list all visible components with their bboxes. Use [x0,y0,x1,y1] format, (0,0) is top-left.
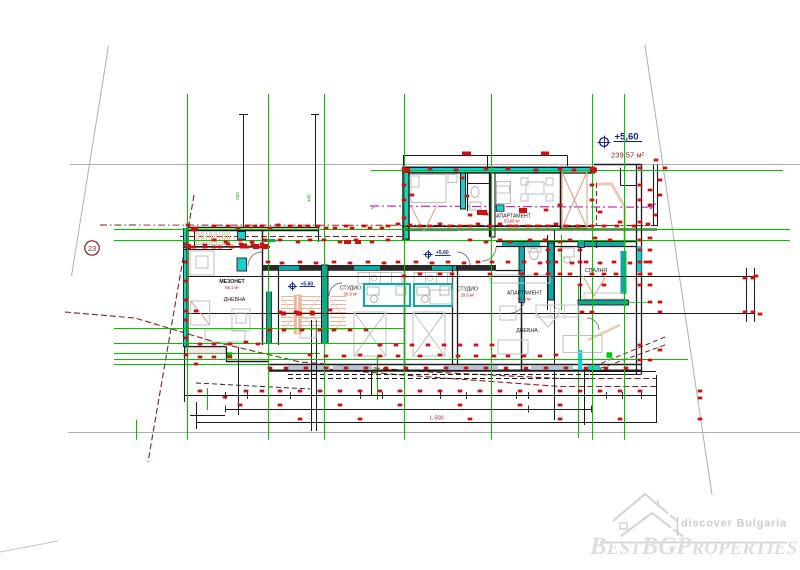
svg-text:L 500: L 500 [430,416,444,422]
svg-text:ДНЕВНА: ДНЕВНА [224,297,246,303]
svg-text:+5,60: +5,60 [436,250,449,256]
svg-text:53,8 м²: 53,8 м² [518,297,532,302]
svg-text:+5,60: +5,60 [615,132,639,143]
svg-text:239,57 м²: 239,57 м² [611,151,645,160]
svg-text:68,1 м²: 68,1 м² [225,285,239,290]
svg-text:53,08 м²: 53,08 м² [504,218,521,223]
svg-text:23: 23 [88,244,96,253]
svg-text:ДНЕВНА: ДНЕВНА [516,328,538,334]
svg-text:BESTBGPROPERTIES: BESTBGPROPERTIES [589,533,797,560]
svg-text:30,9 м²: 30,9 м² [344,292,358,297]
svg-text:29,6 м²: 29,6 м² [461,293,475,298]
svg-text:553: 553 [235,192,240,200]
svg-text:445: 445 [307,194,312,202]
svg-text:discover Bulgaria: discover Bulgaria [681,518,787,530]
